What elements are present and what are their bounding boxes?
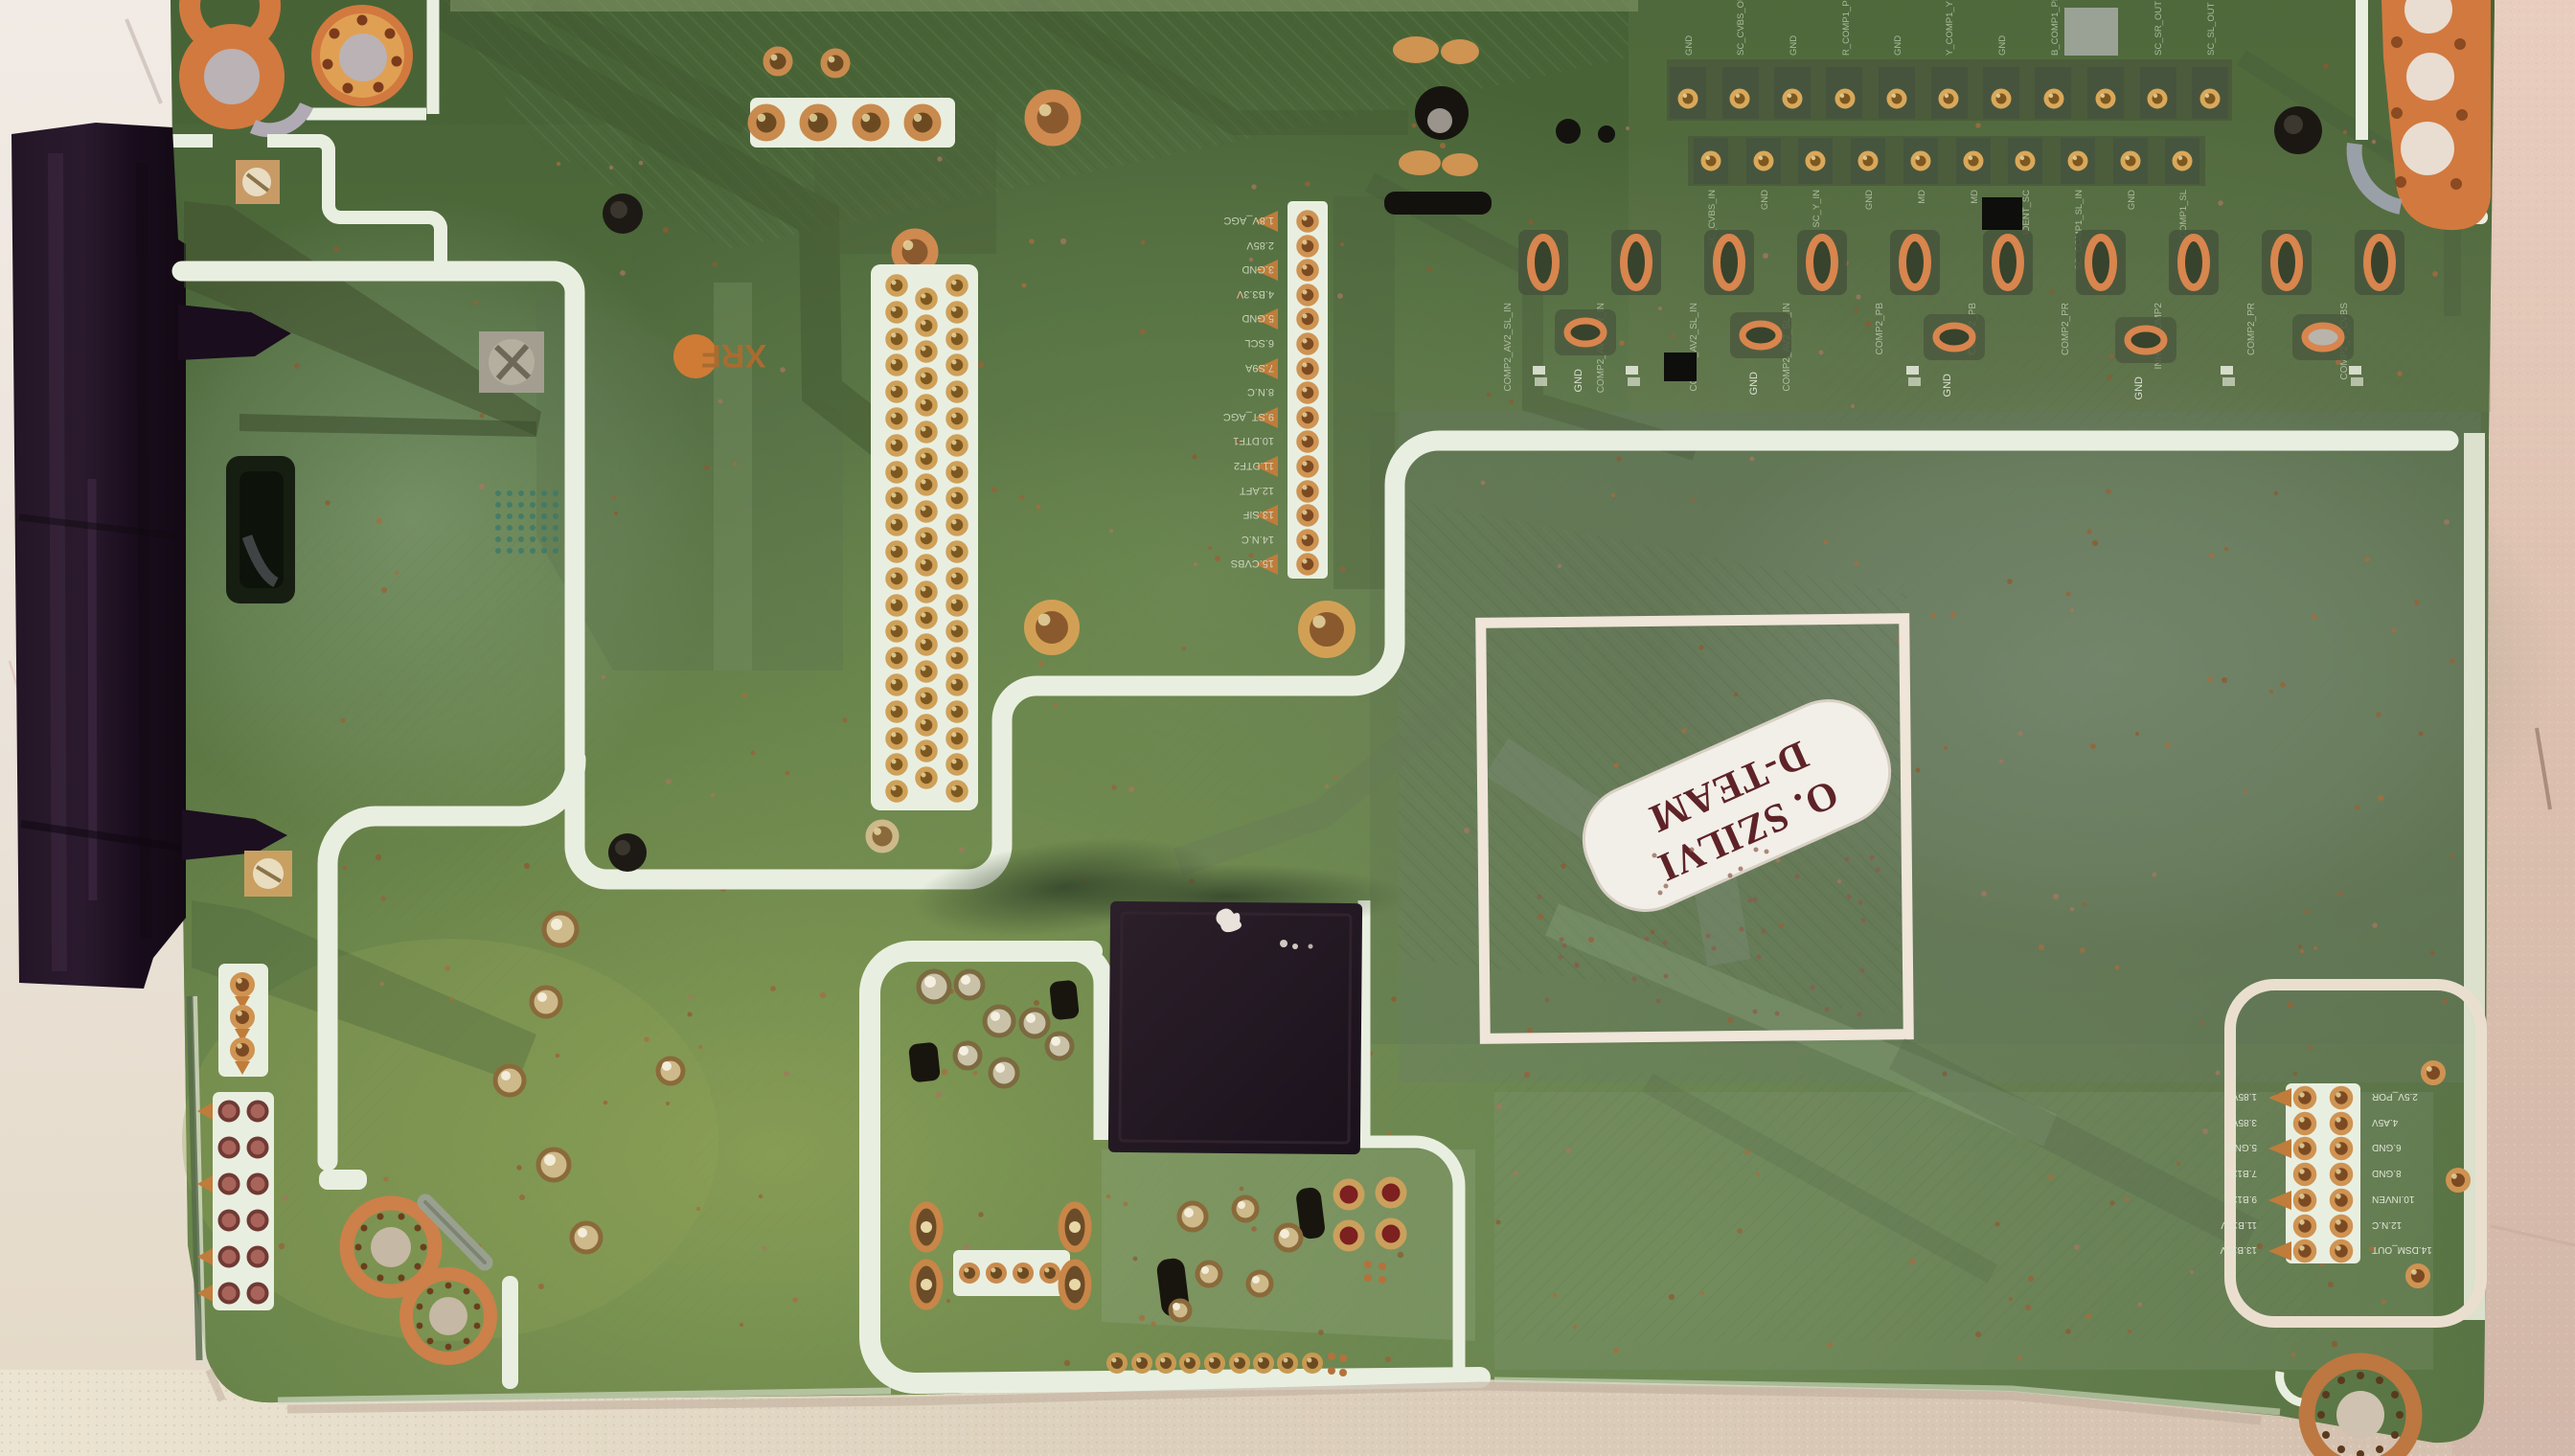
svg-text:COMP2_PR: COMP2_PR xyxy=(2246,303,2257,355)
svg-text:1.8V_AGC: 1.8V_AGC xyxy=(1223,215,1274,226)
svg-text:MD: MD xyxy=(1970,190,1980,204)
svg-text:6.GND: 6.GND xyxy=(2372,1142,2402,1152)
svg-text:MD: MD xyxy=(1917,190,1927,204)
svg-text:9.ST_AGC: 9.ST_AGC xyxy=(1223,411,1274,422)
svg-text:13.B12V: 13.B12V xyxy=(2220,1244,2257,1255)
svg-text:B_COMP1_PR: B_COMP1_PR xyxy=(2050,0,2061,56)
svg-text:14.DSM_OUT: 14.DSM_OUT xyxy=(2372,1244,2432,1255)
svg-text:6.SCL: 6.SCL xyxy=(1244,337,1274,349)
svg-text:2.85V: 2.85V xyxy=(1246,239,1274,251)
svg-text:1.85V: 1.85V xyxy=(2232,1091,2257,1102)
svg-text:SC_SR_OUT: SC_SR_OUT xyxy=(2153,1,2164,56)
svg-text:13.SIF: 13.SIF xyxy=(1242,509,1274,520)
svg-text:SC_SL_OUT: SC_SL_OUT xyxy=(2206,2,2217,56)
svg-text:12.AFT: 12.AFT xyxy=(1240,485,1274,496)
svg-text:11.DTF2: 11.DTF2 xyxy=(1234,460,1274,471)
svg-text:IDENT_SC: IDENT_SC xyxy=(2021,190,2032,235)
svg-text:GND: GND xyxy=(1748,372,1760,396)
svg-text:Y_COMP1_Y: Y_COMP1_Y xyxy=(1945,0,1955,56)
svg-text:GND: GND xyxy=(1789,35,1799,56)
svg-text:4.A5V: 4.A5V xyxy=(2372,1117,2399,1127)
svg-text:GND: GND xyxy=(1864,190,1875,210)
svg-text:3.85V: 3.85V xyxy=(2232,1117,2257,1127)
svg-text:GND: GND xyxy=(2127,190,2137,210)
svg-text:GND: GND xyxy=(1573,369,1584,393)
svg-text:7.S9A: 7.S9A xyxy=(1244,362,1274,374)
svg-text:GND: GND xyxy=(1893,35,1903,56)
svg-text:SC_CVBS_OUT: SC_CVBS_OUT xyxy=(1736,0,1746,56)
svg-text:GND: GND xyxy=(2133,376,2145,400)
svg-text:10.DTF1: 10.DTF1 xyxy=(1233,435,1274,446)
svg-text:COMP2_PB: COMP2_PB xyxy=(1875,303,1885,355)
svg-text:5.GND: 5.GND xyxy=(1242,312,1274,324)
svg-text:5.GND: 5.GND xyxy=(2227,1142,2257,1152)
svg-text:GND: GND xyxy=(1684,35,1695,56)
svg-text:GND: GND xyxy=(1942,374,1953,398)
svg-text:7.B12V: 7.B12V xyxy=(2225,1168,2257,1178)
svg-text:2.5V_POR: 2.5V_POR xyxy=(2372,1091,2418,1102)
svg-text:SC_Y_IN: SC_Y_IN xyxy=(1812,190,1822,228)
svg-text:3.GND: 3.GND xyxy=(1242,263,1274,275)
svg-text:GND: GND xyxy=(1760,190,1770,210)
svg-text:COMP2_AV2_SL_IN: COMP2_AV2_SL_IN xyxy=(1503,303,1514,392)
svg-text:8.N.C: 8.N.C xyxy=(1247,386,1274,398)
svg-text:R_COMP1_PB: R_COMP1_PB xyxy=(1841,0,1852,56)
svg-text:14.N.C: 14.N.C xyxy=(1242,534,1274,545)
svg-text:XRF: XRF xyxy=(701,337,766,374)
svg-text:15.CVBS: 15.CVBS xyxy=(1231,557,1274,569)
svg-text:12.N.C: 12.N.C xyxy=(2372,1219,2402,1230)
svg-text:4.B3.3V: 4.B3.3V xyxy=(1236,288,1274,300)
svg-text:8.GND: 8.GND xyxy=(2372,1168,2402,1178)
svg-text:11.B12V: 11.B12V xyxy=(2221,1219,2257,1230)
svg-text:GND: GND xyxy=(1997,35,2008,56)
svg-text:10.INVEN: 10.INVEN xyxy=(2372,1194,2414,1204)
svg-text:9.B12V: 9.B12V xyxy=(2225,1194,2257,1204)
svg-text:COMP2_PR: COMP2_PR xyxy=(2061,303,2071,355)
